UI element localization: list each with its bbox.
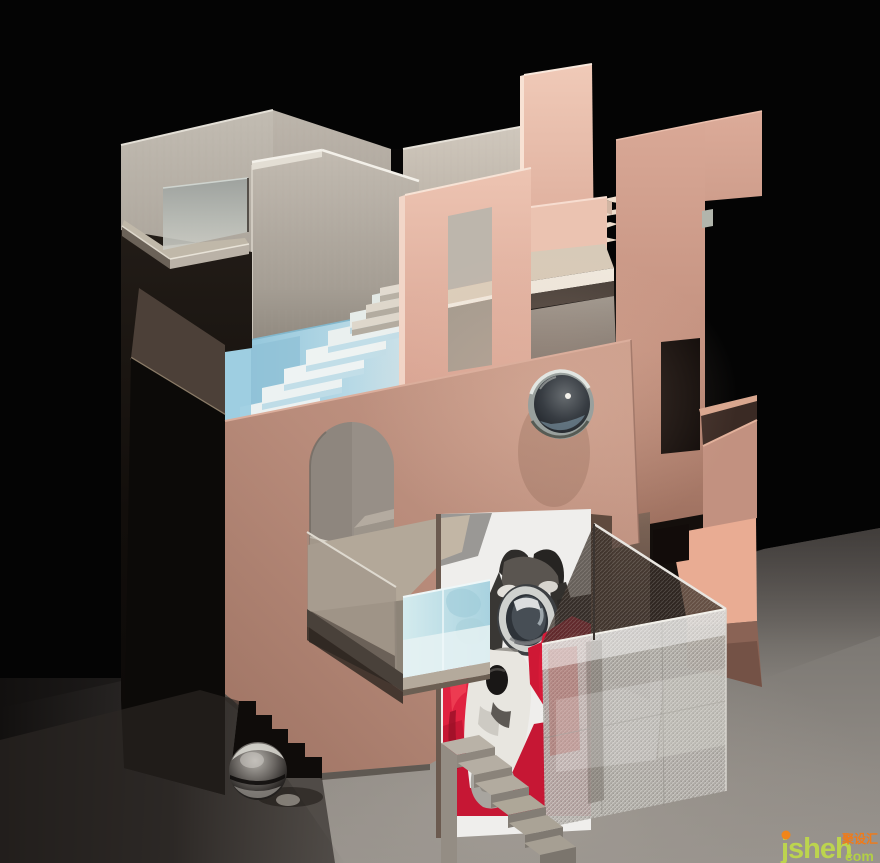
svg-text:聚设汇: 聚设汇 [841, 831, 878, 846]
svg-text:jsheh: jsheh [780, 833, 852, 863]
svg-text:com: com [845, 848, 874, 863]
